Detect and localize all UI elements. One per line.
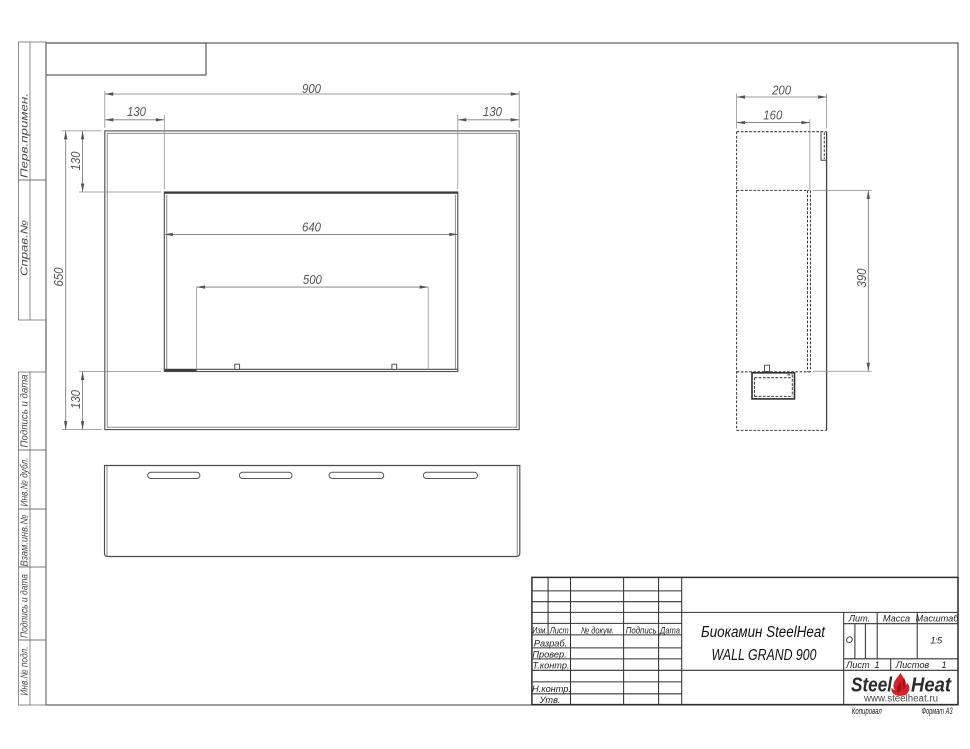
- svg-text:Инв.№ подл.: Инв.№ подл.: [20, 647, 31, 696]
- svg-text:Перв.примен.: Перв.примен.: [20, 93, 31, 178]
- svg-text:160: 160: [763, 108, 783, 123]
- svg-text:Провер.: Провер.: [532, 649, 566, 659]
- svg-text:Листов: Листов: [895, 660, 930, 670]
- svg-text:Инв.№ дубл.: Инв.№ дубл.: [19, 458, 31, 507]
- svg-text:Масса: Масса: [883, 613, 910, 623]
- svg-text:Изм.: Изм.: [532, 626, 547, 636]
- svg-text:Подпись и дата: Подпись и дата: [20, 574, 31, 638]
- svg-text:Взам.инв.№: Взам.инв.№: [20, 514, 31, 566]
- svg-text:Разраб.: Разраб.: [534, 638, 567, 648]
- svg-text:Формат А3: Формат А3: [922, 706, 954, 716]
- svg-text:Лист: Лист: [845, 660, 870, 670]
- svg-text:Подпись и дата: Подпись и дата: [20, 374, 31, 447]
- svg-text:Лист: Лист: [549, 626, 569, 636]
- svg-text:Биокамин SteelHeat: Биокамин SteelHeat: [701, 624, 826, 641]
- svg-text:130: 130: [68, 151, 83, 171]
- svg-text:Справ.№: Справ.№: [20, 220, 31, 276]
- svg-text:900: 900: [302, 81, 322, 96]
- svg-text:www.steelheat.ru: www.steelheat.ru: [863, 694, 938, 705]
- svg-text:500: 500: [303, 272, 323, 287]
- svg-text:130: 130: [68, 389, 83, 409]
- svg-text:Т.контр.: Т.контр.: [532, 661, 569, 671]
- svg-text:200: 200: [771, 82, 792, 97]
- svg-text:650: 650: [51, 267, 66, 287]
- svg-text:Лит.: Лит.: [848, 613, 871, 623]
- svg-text:130: 130: [127, 104, 147, 119]
- svg-text:Копировал: Копировал: [852, 706, 882, 716]
- svg-text:640: 640: [302, 220, 322, 235]
- svg-text:Подпись: Подпись: [626, 626, 657, 636]
- svg-text:1: 1: [874, 660, 879, 670]
- svg-text:1: 1: [941, 660, 946, 670]
- svg-text:1:5: 1:5: [930, 636, 943, 646]
- svg-text:390: 390: [854, 268, 869, 288]
- svg-text:WALL GRAND 900: WALL GRAND 900: [712, 647, 817, 664]
- svg-text:Н.контр.: Н.контр.: [532, 684, 571, 694]
- svg-text:Утв.: Утв.: [539, 695, 561, 705]
- svg-text:№ докум.: № докум.: [581, 626, 614, 636]
- svg-text:130: 130: [483, 104, 503, 119]
- svg-text:О: О: [846, 635, 853, 645]
- svg-text:Масштаб: Масштаб: [916, 613, 960, 623]
- svg-text:Дата: Дата: [659, 626, 680, 636]
